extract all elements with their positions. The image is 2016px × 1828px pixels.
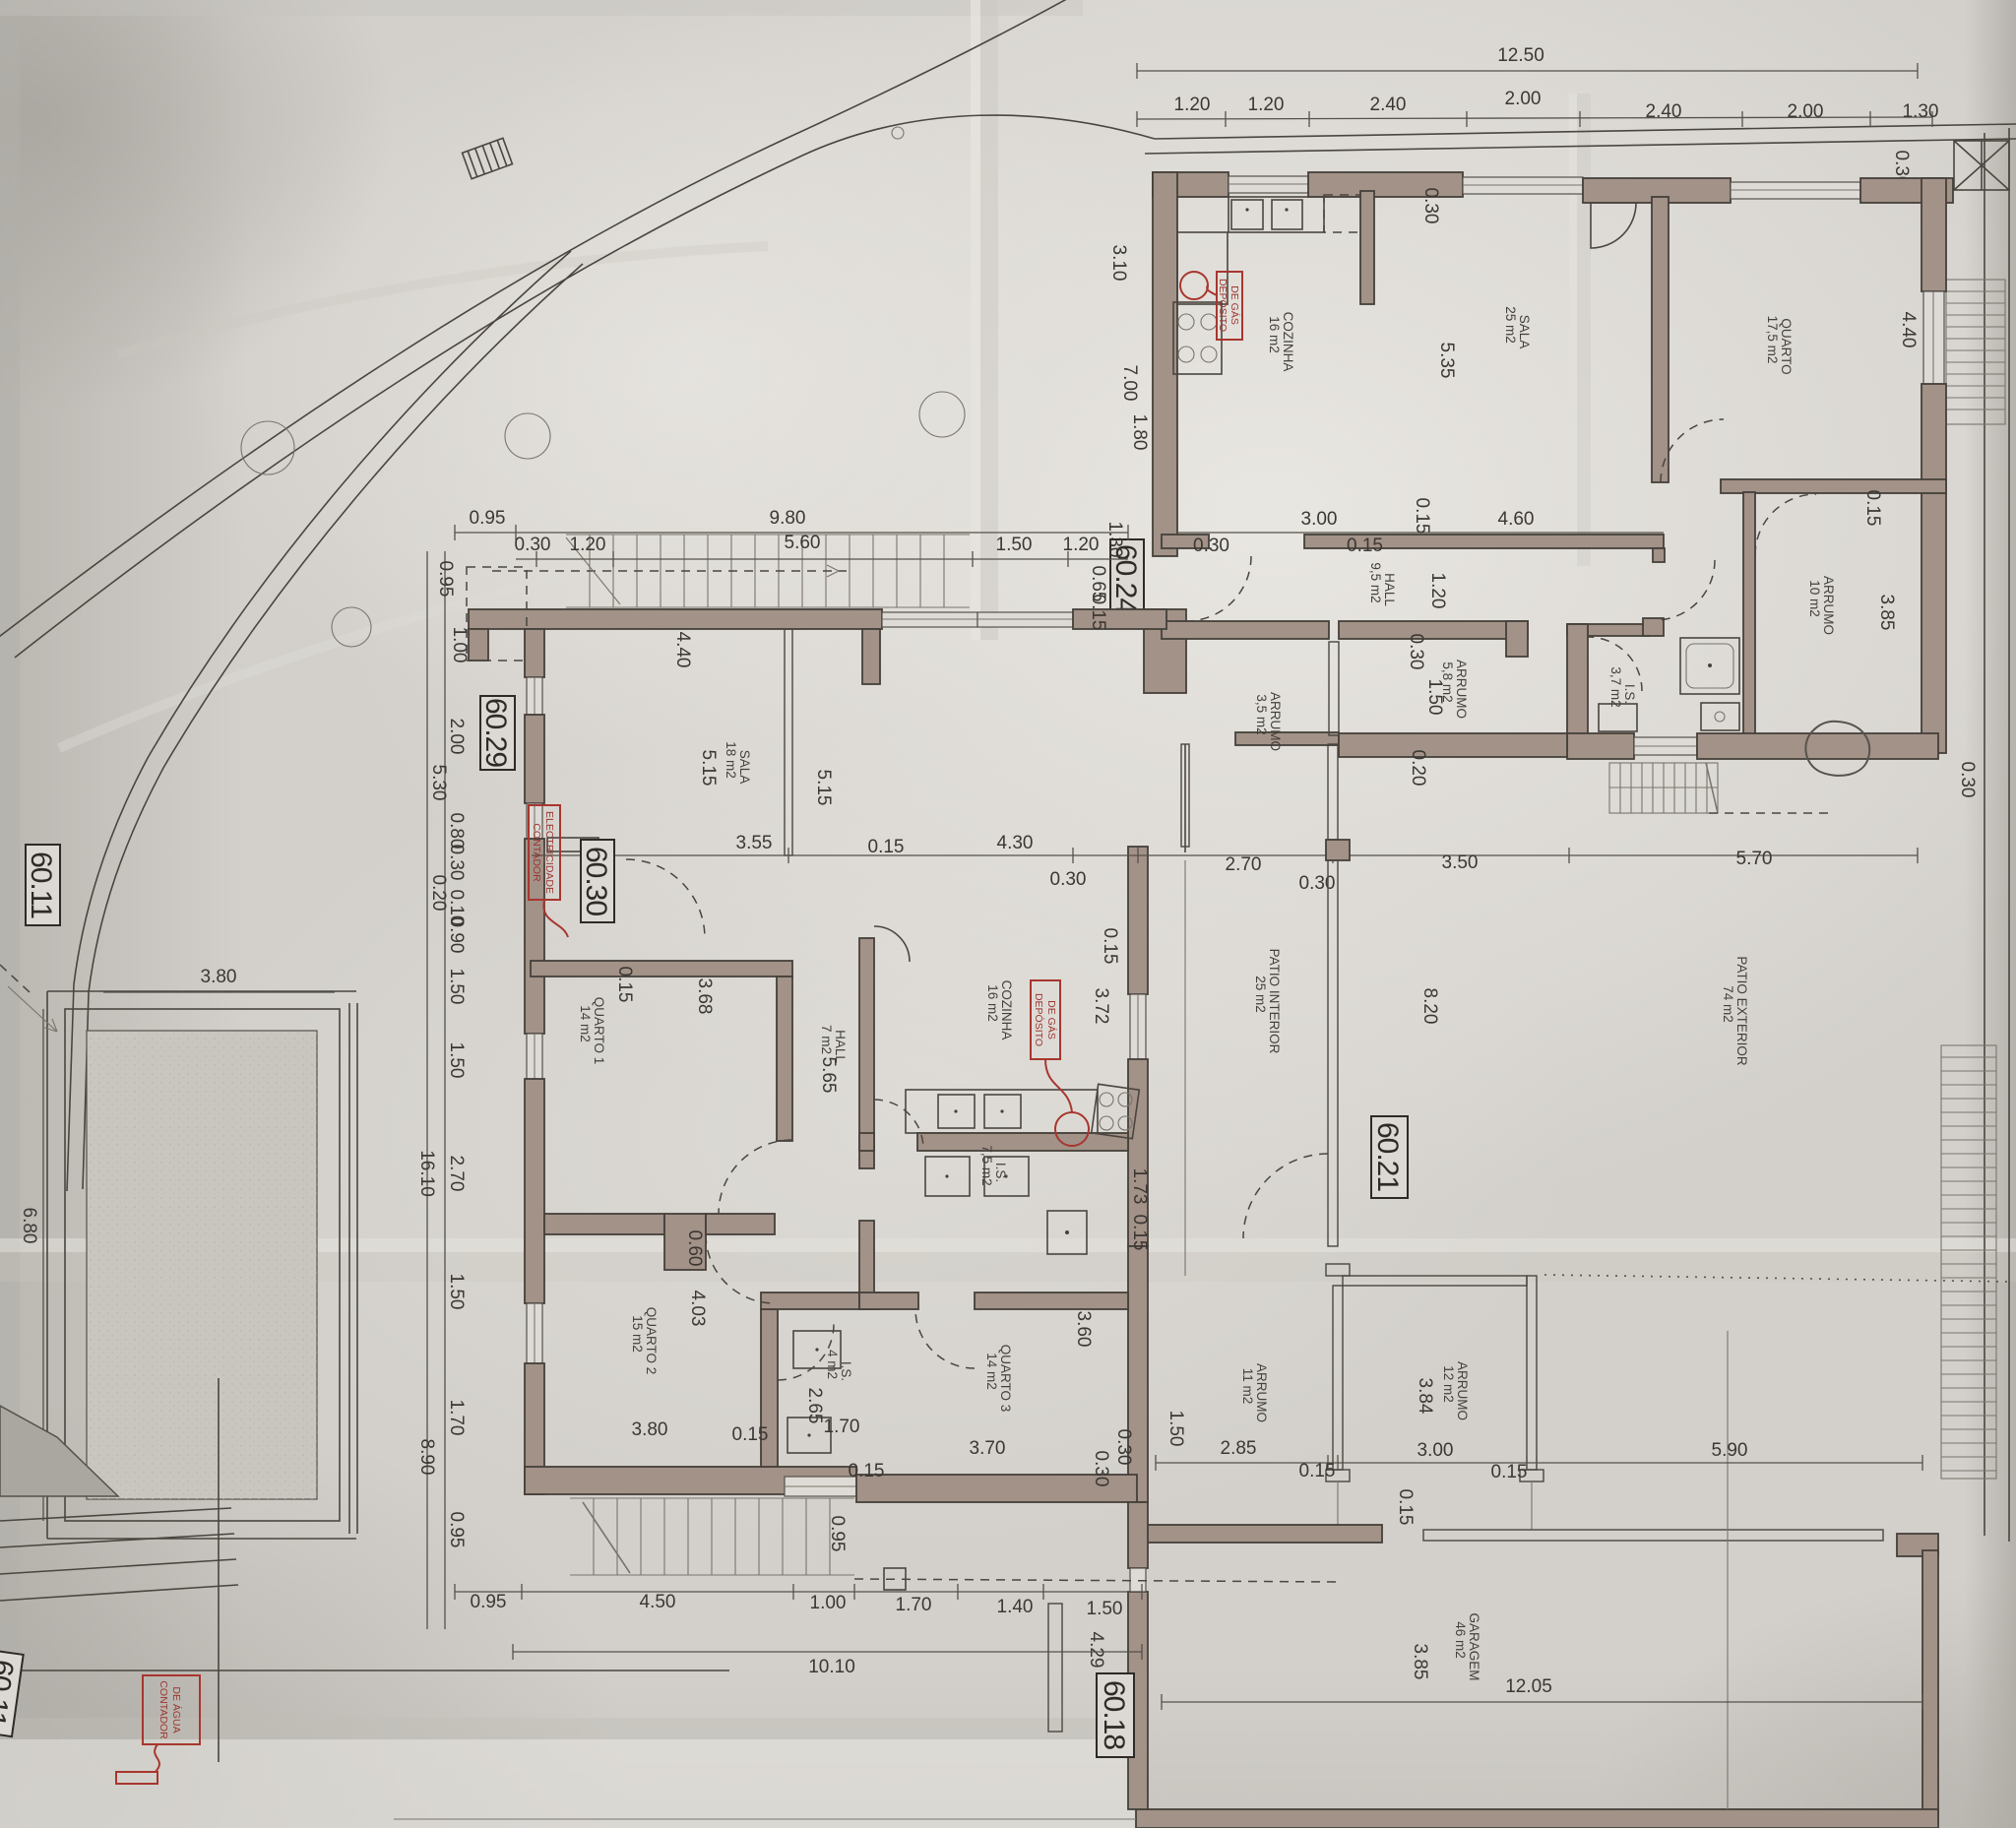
svg-text:0.90: 0.90 [446, 917, 467, 954]
svg-text:8.20: 8.20 [1419, 988, 1440, 1025]
svg-text:1.70: 1.70 [896, 1595, 932, 1615]
svg-text:1.70: 1.70 [446, 1400, 467, 1436]
svg-text:1.20: 1.20 [1427, 573, 1448, 609]
svg-text:2.00: 2.00 [1505, 89, 1542, 109]
svg-text:0.20: 0.20 [1408, 750, 1428, 787]
svg-text:4.60: 4.60 [1498, 509, 1535, 530]
svg-text:4.30: 4.30 [997, 833, 1034, 853]
svg-text:3.84: 3.84 [1415, 1378, 1435, 1415]
svg-text:DE ÁGUA: DE ÁGUA [170, 1686, 183, 1733]
svg-text:0.30: 0.30 [1299, 873, 1336, 894]
svg-text:2.40: 2.40 [1370, 95, 1407, 115]
svg-text:12.50: 12.50 [1497, 45, 1544, 66]
svg-text:SALA: SALA [737, 750, 752, 785]
svg-text:1.20: 1.20 [1174, 95, 1211, 115]
svg-text:14 m2: 14 m2 [578, 1005, 593, 1042]
svg-text:16 m2: 16 m2 [1267, 316, 1282, 353]
svg-text:DE GÁS: DE GÁS [1228, 285, 1241, 325]
svg-text:0.15: 0.15 [1129, 1215, 1150, 1251]
svg-text:3.72: 3.72 [1091, 988, 1111, 1025]
svg-text:9,5 m2: 9,5 m2 [1368, 562, 1383, 602]
svg-text:4.50: 4.50 [640, 1592, 676, 1612]
svg-text:1.20: 1.20 [570, 535, 606, 555]
svg-text:CONTADOR: CONTADOR [531, 823, 542, 882]
svg-text:PATIO EXTERIOR: PATIO EXTERIOR [1734, 956, 1749, 1066]
svg-text:3.50: 3.50 [1442, 852, 1479, 873]
svg-text:QUARTO 2: QUARTO 2 [644, 1307, 659, 1375]
svg-text:COZINHA: COZINHA [999, 980, 1014, 1040]
svg-text:ARRUMO: ARRUMO [1268, 692, 1283, 751]
svg-text:0.15: 0.15 [1412, 498, 1432, 535]
svg-text:2.65: 2.65 [804, 1388, 825, 1424]
svg-text:5.60: 5.60 [785, 533, 821, 553]
svg-text:1.40: 1.40 [997, 1597, 1034, 1617]
svg-text:8.90: 8.90 [416, 1439, 437, 1476]
svg-text:3.85: 3.85 [1876, 595, 1897, 631]
svg-text:QUARTO 1: QUARTO 1 [592, 997, 606, 1065]
svg-text:1.73: 1.73 [1129, 1168, 1150, 1205]
svg-text:2.85: 2.85 [1221, 1438, 1257, 1459]
svg-text:0.15: 0.15 [732, 1424, 769, 1445]
svg-text:1.30: 1.30 [1104, 522, 1125, 558]
svg-text:ARRUMO: ARRUMO [1821, 576, 1836, 635]
svg-text:0.30: 0.30 [515, 535, 551, 555]
svg-text:I.S.: I.S. [1622, 684, 1637, 704]
svg-text:5.65: 5.65 [818, 1057, 839, 1094]
svg-text:ARRUMO: ARRUMO [1455, 1361, 1470, 1420]
svg-text:ARRUMO: ARRUMO [1254, 1363, 1269, 1422]
svg-text:2.40: 2.40 [1646, 101, 1682, 122]
svg-text:3.00: 3.00 [1417, 1440, 1454, 1461]
svg-text:5.15: 5.15 [698, 750, 719, 787]
svg-text:2.70: 2.70 [446, 1156, 467, 1192]
svg-text:3.55: 3.55 [736, 833, 773, 853]
svg-text:4 m2: 4 m2 [825, 1350, 840, 1379]
svg-text:0.15: 0.15 [1347, 536, 1383, 556]
svg-text:0.30: 0.30 [1091, 1451, 1111, 1487]
svg-text:5.70: 5.70 [1736, 849, 1773, 869]
svg-text:16 m2: 16 m2 [985, 984, 1000, 1022]
svg-text:7.00: 7.00 [1119, 365, 1140, 402]
svg-text:4.03: 4.03 [687, 1291, 708, 1327]
svg-text:1.70: 1.70 [824, 1417, 860, 1437]
svg-text:1.00: 1.00 [810, 1593, 847, 1613]
svg-text:14 m2: 14 m2 [984, 1353, 999, 1390]
svg-text:60.21: 60.21 [1371, 1122, 1404, 1191]
svg-text:7 m2: 7 m2 [819, 1025, 834, 1054]
svg-text:0.30: 0.30 [1113, 1429, 1134, 1466]
svg-text:1.00: 1.00 [449, 627, 470, 663]
svg-text:0.15: 0.15 [849, 1461, 885, 1481]
svg-text:3,7 m2: 3,7 m2 [1608, 666, 1623, 707]
svg-text:25 m2: 25 m2 [1253, 976, 1268, 1013]
svg-text:0.95: 0.95 [471, 1592, 507, 1612]
svg-text:5.30: 5.30 [428, 765, 449, 801]
svg-text:QUARTO: QUARTO [1779, 318, 1794, 374]
svg-text:60.30: 60.30 [580, 847, 612, 915]
svg-text:QUARTO 3: QUARTO 3 [998, 1345, 1013, 1413]
svg-text:0.60: 0.60 [684, 1230, 705, 1267]
svg-text:0.20: 0.20 [428, 875, 449, 912]
svg-text:1.50: 1.50 [1424, 679, 1445, 716]
svg-text:11 m2: 11 m2 [1240, 1368, 1255, 1405]
svg-text:SALA: SALA [1517, 315, 1532, 349]
svg-text:COZINHA: COZINHA [1281, 312, 1295, 372]
svg-text:10 m2: 10 m2 [1807, 580, 1822, 617]
svg-text:1.50: 1.50 [446, 969, 467, 1005]
svg-text:4.29: 4.29 [1086, 1632, 1106, 1669]
svg-text:I.S.: I.S. [839, 1361, 853, 1381]
svg-text:60.29: 60.29 [479, 698, 512, 767]
svg-text:DEPÓSITO: DEPÓSITO [1033, 993, 1045, 1046]
svg-text:3.85: 3.85 [1410, 1644, 1430, 1680]
svg-text:4.40: 4.40 [672, 632, 693, 668]
svg-text:0.95: 0.95 [827, 1516, 848, 1552]
svg-text:46 m2: 46 m2 [1453, 1621, 1468, 1659]
svg-text:GARAGEM: GARAGEM [1467, 1612, 1481, 1680]
svg-text:0.95: 0.95 [470, 508, 506, 529]
svg-text:0.30: 0.30 [1193, 536, 1229, 556]
svg-text:HALL: HALL [1382, 573, 1397, 606]
svg-text:3.80: 3.80 [632, 1419, 668, 1440]
svg-text:1.50: 1.50 [446, 1042, 467, 1079]
svg-text:12 m2: 12 m2 [1441, 1365, 1456, 1403]
svg-text:5.35: 5.35 [1436, 343, 1457, 379]
svg-text:0.15: 0.15 [1491, 1462, 1528, 1482]
svg-text:60.18: 60.18 [1098, 1680, 1130, 1749]
svg-text:7,5 m2: 7,5 m2 [979, 1145, 994, 1185]
svg-text:5.15: 5.15 [813, 770, 834, 806]
svg-text:17,5 m2: 17,5 m2 [1765, 316, 1780, 364]
svg-text:ARRUMO: ARRUMO [1454, 660, 1469, 719]
svg-text:DEPÓSITO: DEPÓSITO [1217, 279, 1229, 332]
svg-text:2.00: 2.00 [1788, 101, 1824, 122]
svg-text:16.10: 16.10 [416, 1150, 437, 1197]
svg-text:2.70: 2.70 [1226, 854, 1262, 875]
svg-text:1.20: 1.20 [1063, 535, 1100, 555]
svg-text:0.15: 0.15 [1395, 1489, 1416, 1526]
svg-text:74 m2: 74 m2 [1721, 985, 1735, 1023]
svg-text:0.30: 0.30 [1050, 869, 1087, 890]
svg-text:0.30: 0.30 [1420, 188, 1441, 224]
svg-text:0.95: 0.95 [435, 561, 456, 598]
svg-text:0.15: 0.15 [868, 837, 905, 857]
svg-text:0.95: 0.95 [446, 1512, 467, 1548]
svg-text:0.15: 0.15 [1100, 928, 1120, 965]
svg-text:3.10: 3.10 [1108, 245, 1129, 282]
svg-text:1.30: 1.30 [1903, 101, 1939, 122]
svg-text:5.90: 5.90 [1712, 1440, 1748, 1461]
svg-text:1.50: 1.50 [446, 1274, 467, 1310]
svg-text:1.50: 1.50 [996, 535, 1033, 555]
svg-text:CONTADOR: CONTADOR [157, 1680, 169, 1739]
svg-text:1.50: 1.50 [1165, 1411, 1186, 1447]
svg-text:0.15: 0.15 [614, 967, 635, 1003]
svg-text:3,5 m2: 3,5 m2 [1254, 694, 1269, 734]
svg-text:1.80: 1.80 [1129, 414, 1150, 451]
svg-text:0.15: 0.15 [1862, 490, 1883, 527]
svg-text:0.30: 0.30 [1957, 762, 1978, 798]
svg-text:ELECTRICIDADE: ELECTRICIDADE [543, 811, 555, 894]
svg-text:PATIO INTERIOR: PATIO INTERIOR [1267, 949, 1282, 1054]
svg-text:3.68: 3.68 [694, 978, 715, 1015]
svg-text:2.00: 2.00 [446, 719, 467, 755]
svg-text:0.15: 0.15 [1299, 1461, 1336, 1481]
svg-text:9.80: 9.80 [770, 508, 806, 529]
svg-text:0.30: 0.30 [1406, 634, 1426, 670]
svg-text:3.00: 3.00 [1301, 509, 1338, 530]
svg-text:3.80: 3.80 [201, 967, 237, 987]
svg-text:4.40: 4.40 [1898, 312, 1919, 348]
svg-text:3.70: 3.70 [970, 1438, 1006, 1459]
svg-text:DE GÁS: DE GÁS [1045, 1000, 1058, 1040]
svg-text:6.80: 6.80 [19, 1208, 39, 1244]
svg-text:15 m2: 15 m2 [630, 1315, 645, 1353]
svg-text:1.50: 1.50 [1087, 1599, 1123, 1619]
svg-text:10.10: 10.10 [808, 1657, 855, 1677]
svg-text:25 m2: 25 m2 [1503, 306, 1518, 344]
svg-text:I.S.: I.S. [993, 1163, 1008, 1182]
svg-text:12.05: 12.05 [1505, 1676, 1552, 1697]
svg-text:1.20: 1.20 [1248, 95, 1285, 115]
svg-text:60.11: 60.11 [25, 851, 57, 918]
svg-text:0.15: 0.15 [1088, 595, 1108, 631]
svg-text:18 m2: 18 m2 [724, 741, 738, 779]
svg-text:3.60: 3.60 [1073, 1311, 1094, 1348]
